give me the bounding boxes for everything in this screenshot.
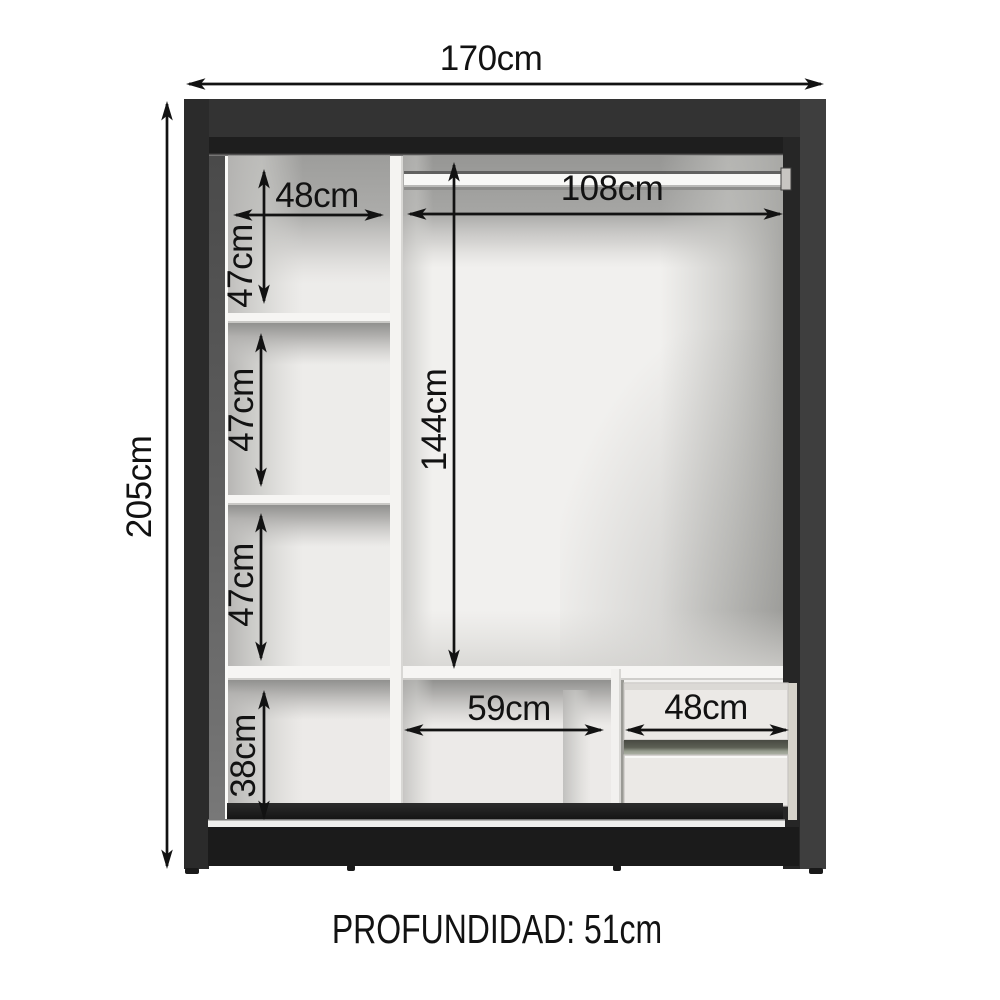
svg-text:47cm: 47cm bbox=[221, 224, 260, 308]
svg-text:47cm: 47cm bbox=[222, 368, 261, 452]
svg-text:38cm: 38cm bbox=[224, 714, 263, 798]
svg-text:PROFUNDIDAD: 51cm: PROFUNDIDAD: 51cm bbox=[332, 906, 662, 952]
svg-text:47cm: 47cm bbox=[222, 543, 261, 627]
svg-text:59cm: 59cm bbox=[467, 689, 551, 728]
svg-text:108cm: 108cm bbox=[561, 169, 664, 208]
svg-text:170cm: 170cm bbox=[440, 39, 543, 78]
svg-text:205cm: 205cm bbox=[120, 436, 159, 539]
svg-text:144cm: 144cm bbox=[415, 369, 454, 472]
svg-text:48cm: 48cm bbox=[275, 176, 359, 215]
svg-text:48cm: 48cm bbox=[664, 688, 748, 727]
